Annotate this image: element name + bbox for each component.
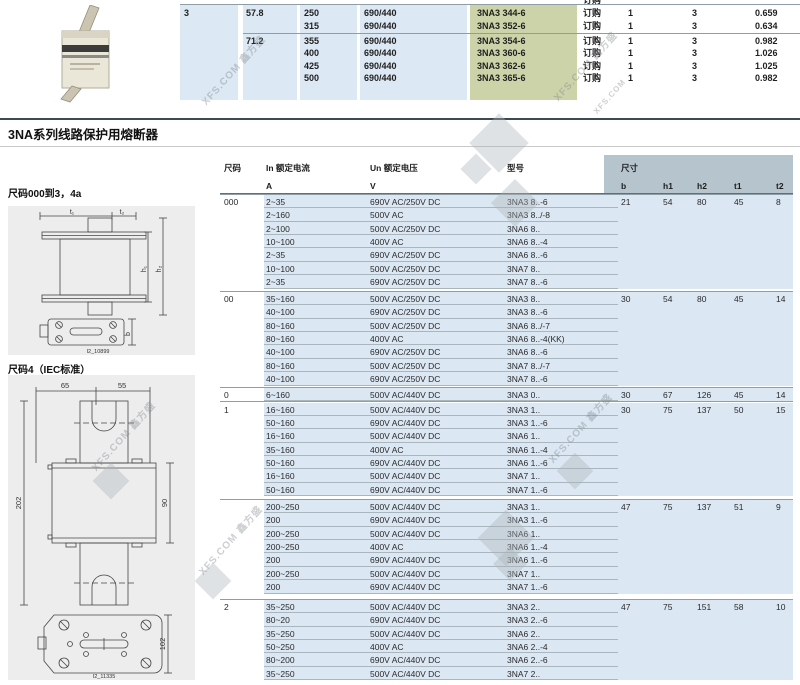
cell-model: 3NA3 2..-6 (507, 615, 548, 626)
cell-dim: 14 (776, 390, 785, 400)
row-separator (264, 579, 618, 580)
row-separator (264, 261, 618, 262)
cell-voltage: 500V AC/440V DC (370, 405, 440, 416)
header-current: In 额定电流 (266, 163, 310, 173)
cell-dim: 58 (734, 602, 743, 612)
top-cell-in: 425 (304, 61, 319, 72)
dim-h1-label: h₁ (141, 265, 148, 272)
cell-current: 200 (266, 582, 280, 593)
section-rule-bottom (0, 146, 800, 147)
row-separator (264, 495, 618, 496)
top-cell-weight: 0.982 (755, 36, 778, 47)
cell-model: 3NA7 8../-7 (507, 361, 550, 372)
col-bg-size (180, 5, 238, 100)
dim-h2-label: h₂ (156, 265, 163, 272)
size-group-block: 200~250500V AC/440V DC3NA3 1..200690V AC… (264, 500, 793, 594)
dim-202-label: 202 (14, 497, 23, 510)
row-separator (264, 318, 618, 319)
cell-current: 2~35 (266, 197, 285, 208)
cell-size-code: 2 (224, 602, 229, 612)
row-separator (264, 626, 618, 627)
top-cell-model: 3NA3 354-6 (477, 36, 526, 47)
row-separator (264, 482, 618, 483)
cell-dim: 10 (776, 602, 785, 612)
size-group-block: 35~250500V AC/440V DC3NA3 2..80~20690V A… (264, 600, 793, 680)
cell-model: 3NA6 1.. (507, 529, 540, 540)
top-cell-order[interactable]: 订购 (583, 48, 601, 59)
cell-model: 3NA6 2..-4 (507, 642, 548, 653)
cell-current: 80~160 (266, 361, 295, 372)
cell-dim: 50 (734, 405, 743, 415)
cell-voltage: 690V AC/250V DC (370, 197, 440, 208)
dim-t1-label: t₁ (70, 209, 75, 216)
cell-voltage: 400V AC (370, 334, 404, 345)
top-cell-order[interactable]: 订购 (583, 8, 601, 19)
cell-dim: 75 (663, 502, 672, 512)
row-separator (264, 415, 618, 416)
top-cell-un: 690/440 (364, 48, 397, 59)
fuse-drawing-size-4: 65 55 202 90 102 I2_11335 (8, 375, 195, 680)
cell-voltage: 500V AC/250V DC (370, 264, 440, 275)
top-cell-weight: 0.634 (755, 21, 778, 32)
top-cell-in: 355 (304, 36, 319, 47)
cell-dim: 21 (621, 197, 630, 207)
cell-current: 200~250 (266, 569, 299, 580)
row-separator (264, 652, 618, 653)
top-cell-model: 3NA3 362-6 (477, 61, 526, 72)
cell-model: 3NA3 8..-6 (507, 307, 548, 318)
clipped-header: 订购 (583, 0, 613, 4)
cell-dim: 47 (621, 602, 630, 612)
row-separator (264, 247, 618, 248)
group-rule (243, 33, 800, 34)
cell-current: 200 (266, 555, 280, 566)
header-t1: t1 (734, 181, 742, 191)
cell-current: 200 (266, 515, 280, 526)
cell-size-code: 000 (224, 197, 238, 207)
cell-model: 3NA3 1..-6 (507, 418, 548, 429)
cell-current: 50~160 (266, 458, 295, 469)
top-cell-un: 690/440 (364, 36, 397, 47)
cell-model: 3NA6 8..-4 (507, 237, 548, 248)
dim-65-label: 65 (61, 381, 69, 390)
top-cell-pack: 1 (628, 48, 633, 59)
cell-dim: 54 (663, 197, 672, 207)
top-cell-unit: 3 (692, 73, 697, 84)
cell-current: 35~250 (266, 602, 295, 613)
cell-current: 35~160 (266, 445, 295, 456)
cell-dim: 8 (776, 197, 781, 207)
cell-model: 3NA7 8..-6 (507, 374, 548, 385)
cell-model: 3NA7 1.. (507, 471, 540, 482)
row-separator (264, 304, 618, 305)
cell-model: 3NA3 8../-8 (507, 210, 550, 221)
cell-model: 3NA7 1.. (507, 569, 540, 580)
cell-model: 3NA7 8..-6 (507, 277, 548, 288)
cell-dim: 75 (663, 602, 672, 612)
cell-voltage: 690V AC/440V DC (370, 582, 440, 593)
top-cell-unit: 3 (692, 21, 697, 32)
row-separator (264, 455, 618, 456)
cell-size-code: 00 (224, 294, 233, 304)
row-separator (264, 612, 618, 613)
dimension-figure-2: 65 55 202 90 102 I2_11335 (8, 375, 195, 680)
figure-1-caption: I2_10899 (87, 349, 110, 355)
dim-55-label: 55 (118, 381, 126, 390)
cell-current: 6~160 (266, 390, 290, 401)
cell-dim: 137 (697, 502, 711, 512)
cell-model: 3NA6 8..-6 (507, 250, 548, 261)
top-cell-in: 315 (304, 21, 319, 32)
row-separator (264, 593, 618, 594)
cell-dim: 9 (776, 502, 781, 512)
cell-model: 3NA6 1..-6 (507, 555, 548, 566)
top-cell-weight: 0.659 (755, 8, 778, 19)
cell-voltage: 500V AC/440V DC (370, 390, 440, 401)
cell-dim: 75 (663, 405, 672, 415)
cell-current: 2~35 (266, 277, 285, 288)
row-separator (264, 331, 618, 332)
dim-b-label: b (125, 332, 132, 336)
cell-current: 40~100 (266, 347, 295, 358)
cell-current: 50~160 (266, 485, 295, 496)
top-cell-order[interactable]: 订购 (583, 73, 601, 84)
row-separator (264, 679, 618, 680)
cell-model: 3NA7 8.. (507, 264, 540, 275)
cell-model: 3NA3 1.. (507, 405, 540, 416)
fuse-drawing-sizes-000-3: t₁ t₂ h₁ h₂ b I2_10899 (8, 206, 195, 355)
main-spec-table: 尺码 In 额定电流 Un 额定电压 型号 尺寸 A V b h1 h2 t1 … (220, 150, 793, 685)
cell-voltage: 500V AC/440V DC (370, 431, 440, 442)
header-model: 型号 (507, 163, 524, 173)
cell-voltage: 690V AC/440V DC (370, 418, 440, 429)
dim-102-label: 102 (158, 638, 167, 651)
cell-voltage: 690V AC/440V DC (370, 615, 440, 626)
top-cell-pack: 1 (628, 8, 633, 19)
cell-voltage: 500V AC/440V DC (370, 569, 440, 580)
cell-current: 80~160 (266, 334, 295, 345)
header-h1: h1 (663, 181, 673, 191)
cell-voltage: 500V AC/440V DC (370, 471, 440, 482)
top-spec-table: 订购 357.8250690/4403NA3 344-6订购130.659315… (180, 0, 800, 110)
cell-dim: 30 (621, 390, 630, 400)
clipped-order-label: 订购 (583, 0, 601, 4)
size-range-label: 尺码000到3，4a (8, 185, 81, 200)
top-cell-model: 3NA3 352-6 (477, 21, 526, 32)
top-cell-in: 400 (304, 48, 319, 59)
cell-model: 3NA6 8.. (507, 224, 540, 235)
top-cell-un: 690/440 (364, 73, 397, 84)
cell-current: 2~35 (266, 250, 285, 261)
row-separator (264, 666, 618, 667)
cell-dim: 30 (621, 405, 630, 415)
top-cell-model: 3NA3 360-6 (477, 48, 526, 59)
cell-voltage: 400V AC (370, 237, 404, 248)
cell-model: 3NA6 1..-6 (507, 458, 548, 469)
row-separator (264, 288, 618, 289)
cell-dim: 80 (697, 294, 706, 304)
catalog-page: 订购 357.8250690/4403NA3 344-6订购130.659315… (0, 0, 800, 685)
cell-model: 3NA6 2..-6 (507, 655, 548, 666)
section-rule-top (0, 118, 800, 120)
cell-current: 10~100 (266, 237, 295, 248)
top-cell-in: 250 (304, 8, 319, 19)
top-cell-pack: 1 (628, 73, 633, 84)
top-cell-pack: 1 (628, 21, 633, 32)
cell-model: 3NA3 8..-6 (507, 197, 548, 208)
cell-current: 2~160 (266, 210, 290, 221)
cell-model: 3NA6 1..-4 (507, 542, 548, 553)
top-cell-un: 690/440 (364, 8, 397, 19)
row-separator (264, 639, 618, 640)
cell-model: 3NA6 8../-7 (507, 321, 550, 332)
top-rule (180, 4, 800, 5)
cell-voltage: 690V AC/440V DC (370, 655, 440, 666)
header-t2: t2 (776, 181, 784, 191)
row-separator (264, 221, 618, 222)
cell-voltage: 690V AC/250V DC (370, 277, 440, 288)
dim-t2-label: t₂ (120, 209, 125, 216)
cell-current: 35~250 (266, 629, 295, 640)
cell-current: 80~20 (266, 615, 290, 626)
row-separator (264, 358, 618, 359)
top-cell-in: 500 (304, 73, 319, 84)
cell-current: 80~160 (266, 321, 295, 332)
row-separator (264, 566, 618, 567)
cell-dim: 51 (734, 502, 743, 512)
cell-model: 3NA6 2.. (507, 629, 540, 640)
cell-model: 3NA3 1..-6 (507, 515, 548, 526)
row-separator (264, 234, 618, 235)
top-cell-weight: 1.025 (755, 61, 778, 72)
cell-voltage: 690V AC/250V DC (370, 374, 440, 385)
cell-model: 3NA3 8.. (507, 294, 540, 305)
cell-current: 80~200 (266, 655, 295, 666)
header-unit-v: V (370, 181, 376, 191)
cell-size-code: 1 (224, 405, 229, 415)
cell-voltage: 690V AC/250V DC (370, 307, 440, 318)
cell-voltage: 500V AC/250V DC (370, 224, 440, 235)
cell-dim: 47 (621, 502, 630, 512)
top-cell-un: 690/440 (364, 21, 397, 32)
top-cell-model: 3NA3 344-6 (477, 8, 526, 19)
header-dimensions: 尺寸 (621, 163, 638, 173)
top-cell-unit: 3 (692, 48, 697, 59)
cell-dim: 126 (697, 390, 711, 400)
cell-current: 200~250 (266, 502, 299, 513)
cell-current: 40~100 (266, 307, 295, 318)
cell-current: 50~250 (266, 642, 295, 653)
top-cell-un: 690/440 (364, 61, 397, 72)
row-separator (264, 442, 618, 443)
row-separator (264, 552, 618, 553)
cell-current: 200~250 (266, 542, 299, 553)
size-group-block: 16~160500V AC/440V DC3NA3 1..50~160690V … (264, 403, 793, 497)
dim-90-label: 90 (160, 499, 169, 507)
cell-voltage: 500V AC (370, 210, 404, 221)
cell-current: 40~100 (266, 374, 295, 385)
cell-model: 3NA7 2.. (507, 669, 540, 680)
row-separator (264, 468, 618, 469)
row-separator (264, 512, 618, 513)
row-separator (264, 428, 618, 429)
header-h2: h2 (697, 181, 707, 191)
cell-voltage: 690V AC/250V DC (370, 250, 440, 261)
top-cell-pack: 1 (628, 61, 633, 72)
cell-model: 3NA7 1..-6 (507, 582, 548, 593)
cell-dim: 54 (663, 294, 672, 304)
cell-model: 3NA6 8..-6 (507, 347, 548, 358)
row-separator (264, 539, 618, 540)
cell-dim: 151 (697, 602, 711, 612)
cell-voltage: 500V AC/440V DC (370, 629, 440, 640)
size-group-block: 6~160500V AC/440V DC3NA3 0.. (264, 388, 793, 401)
cell-dim: 45 (734, 197, 743, 207)
cell-current: 10~100 (266, 264, 295, 275)
cell-model: 3NA6 8..-4(KK) (507, 334, 565, 345)
top-cell-order[interactable]: 订购 (583, 21, 601, 32)
size-group-block: 35~160500V AC/250V DC3NA3 8..40~100690V … (264, 292, 793, 386)
cell-size-code: 0 (224, 390, 229, 400)
cell-voltage: 690V AC/440V DC (370, 458, 440, 469)
row-separator (264, 526, 618, 527)
cell-current: 50~160 (266, 418, 295, 429)
cell-current: 16~160 (266, 405, 295, 416)
top-cell-unit: 3 (692, 36, 697, 47)
cell-voltage: 400V AC (370, 542, 404, 553)
cell-dim: 15 (776, 405, 785, 415)
cell-dim: 80 (697, 197, 706, 207)
fuse-product-photo (50, 5, 120, 103)
header-voltage: Un 额定电压 (370, 163, 418, 173)
cell-voltage: 500V AC/440V DC (370, 529, 440, 540)
cell-voltage: 500V AC/250V DC (370, 321, 440, 332)
top-cell-model: 3NA3 365-6 (477, 73, 526, 84)
cell-current: 35~250 (266, 669, 295, 680)
cell-model: 3NA3 1.. (507, 502, 540, 513)
cell-voltage: 690V AC/250V DC (370, 347, 440, 358)
cell-voltage: 690V AC/440V DC (370, 555, 440, 566)
top-cell-weight: 0.982 (755, 73, 778, 84)
cell-dim: 137 (697, 405, 711, 415)
cell-model: 3NA7 1..-6 (507, 485, 548, 496)
header-size: 尺码 (224, 163, 241, 173)
cell-model: 3NA6 1.. (507, 431, 540, 442)
figure-2-caption: I2_11335 (93, 674, 116, 680)
cell-voltage: 500V AC/440V DC (370, 502, 440, 513)
cell-voltage: 690V AC/440V DC (370, 515, 440, 526)
row-separator (264, 344, 618, 345)
cell-voltage: 500V AC/250V DC (370, 294, 440, 305)
cell-current: 16~160 (266, 431, 295, 442)
row-separator (264, 274, 618, 275)
top-cell-i2t: 71.2 (246, 36, 264, 47)
col-bg-i2t (243, 5, 297, 100)
top-cell-pack: 1 (628, 36, 633, 47)
cell-voltage: 500V AC/440V DC (370, 602, 440, 613)
cell-voltage: 500V AC/250V DC (370, 361, 440, 372)
top-cell-order[interactable]: 订购 (583, 36, 601, 47)
cell-model: 3NA3 0.. (507, 390, 540, 401)
cell-dim: 45 (734, 294, 743, 304)
cell-model: 3NA3 2.. (507, 602, 540, 613)
row-separator (264, 385, 618, 386)
cell-dim: 14 (776, 294, 785, 304)
size-group-block: 2~35690V AC/250V DC3NA3 8..-62~160500V A… (264, 195, 793, 289)
header-unit-a: A (266, 181, 272, 191)
cell-voltage: 690V AC/440V DC (370, 485, 440, 496)
top-cell-unit: 3 (692, 61, 697, 72)
row-separator (264, 371, 618, 372)
row-separator (264, 207, 618, 208)
size-4-label: 尺码4（IEC标准） (8, 361, 90, 376)
cell-voltage: 400V AC (370, 642, 404, 653)
section-title: 3NA系列线路保护用熔断器 (8, 124, 158, 143)
cell-model: 3NA6 1..-4 (507, 445, 548, 456)
cell-current: 16~160 (266, 471, 295, 482)
top-cell-order[interactable]: 订购 (583, 61, 601, 72)
cell-dim: 67 (663, 390, 672, 400)
cell-voltage: 400V AC (370, 445, 404, 456)
cell-dim: 30 (621, 294, 630, 304)
cell-current: 2~100 (266, 224, 290, 235)
top-cell-weight: 1.026 (755, 48, 778, 59)
top-cell-i2t: 57.8 (246, 8, 264, 19)
cell-voltage: 500V AC/440V DC (370, 669, 440, 680)
top-cell-size: 3 (184, 8, 189, 19)
cell-current: 200~250 (266, 529, 299, 540)
dimension-figure-1: t₁ t₂ h₁ h₂ b I2_10899 (8, 206, 195, 355)
top-cell-unit: 3 (692, 8, 697, 19)
cell-current: 35~160 (266, 294, 295, 305)
cell-dim: 45 (734, 390, 743, 400)
header-b: b (621, 181, 626, 191)
